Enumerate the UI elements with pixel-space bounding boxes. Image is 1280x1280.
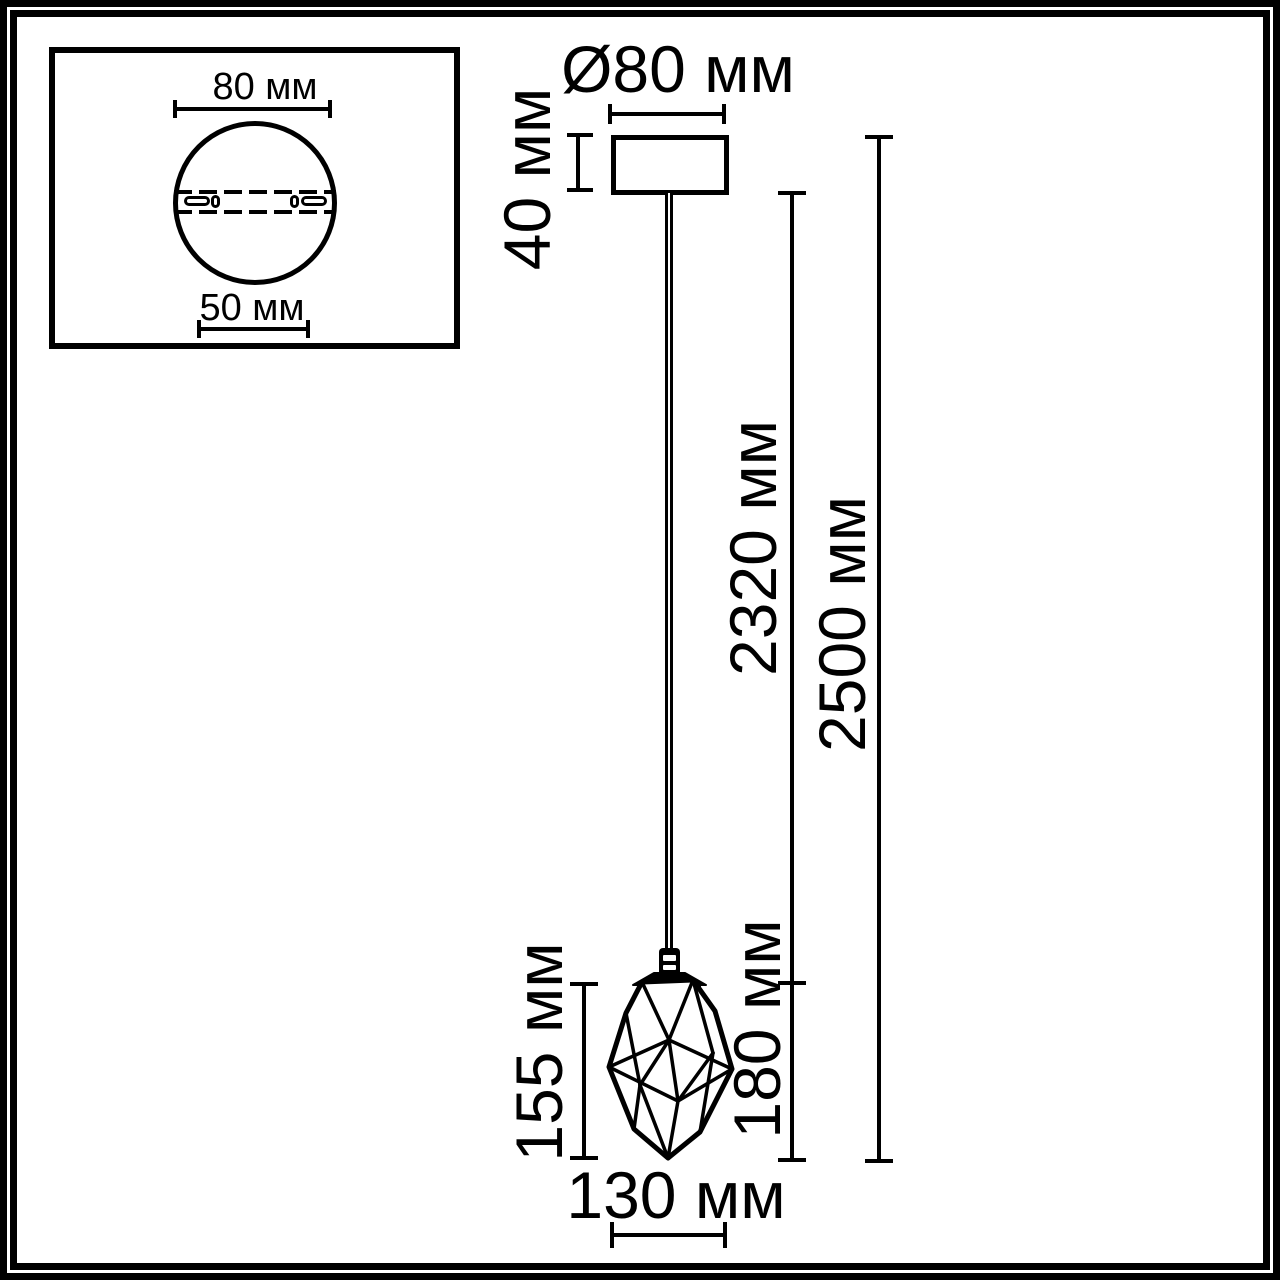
canopy-height-dimension-line: [576, 135, 580, 192]
mount-bracket-dashed-line: [174, 190, 336, 194]
suspension-cable: [665, 193, 673, 950]
overall-length-label: 2500 мм: [809, 496, 875, 752]
mount-slot-left: [184, 196, 210, 206]
inset-plate-diameter-label: 80 мм: [212, 68, 317, 106]
shade-outline: [609, 980, 732, 1158]
dimension-end-tick: [328, 100, 332, 118]
overall-length-dimension-line: [877, 137, 881, 1163]
dimension-end-tick: [197, 320, 201, 338]
cord-length-label: 2320 мм: [720, 420, 786, 676]
crystal-shade-drawing: [597, 937, 747, 1167]
dimension-end-tick: [570, 982, 598, 986]
dimension-end-tick: [608, 104, 612, 124]
dimension-end-tick: [173, 100, 177, 118]
dimension-end-tick: [865, 135, 893, 139]
cord-fitting-groove: [663, 955, 676, 961]
dimension-end-tick: [567, 133, 593, 137]
cord-fitting-groove: [663, 965, 676, 970]
mount-slot-right: [301, 196, 327, 206]
dimension-drawing-page: 80 мм 50 мм Ø80 мм 40 мм 2320 мм 180 мм …: [0, 0, 1280, 1280]
inset-mount-distance-label: 50 мм: [199, 289, 304, 327]
inset-plate-diameter-dimension-line: [175, 107, 332, 111]
ceiling-canopy: [611, 135, 729, 195]
dimension-end-tick: [723, 1222, 727, 1248]
ceiling-plate-inset: 80 мм 50 мм: [49, 47, 460, 349]
dimension-end-tick: [306, 320, 310, 338]
shade-glass-height-dimension-line: [582, 984, 586, 1160]
canopy-diameter-label: Ø80 мм: [561, 36, 795, 102]
dimension-end-tick: [778, 191, 806, 195]
dimension-end-tick: [865, 1159, 893, 1163]
dimension-end-tick: [610, 1222, 614, 1248]
dimension-end-tick: [722, 104, 726, 124]
inset-mount-distance-dimension-line: [199, 327, 310, 331]
canopy-height-label: 40 мм: [494, 88, 560, 271]
shade-width-dimension-line: [612, 1233, 727, 1237]
shade-width-label: 130 мм: [566, 1162, 785, 1228]
mount-hole-right: [290, 195, 299, 208]
dimension-end-tick: [567, 188, 593, 192]
shade-glass-height-label: 155 мм: [506, 942, 572, 1161]
mount-bracket-dashed-line: [174, 210, 336, 214]
cord-fitting: [659, 948, 680, 976]
mount-hole-left: [211, 195, 220, 208]
canopy-diameter-dimension-line: [610, 112, 726, 116]
